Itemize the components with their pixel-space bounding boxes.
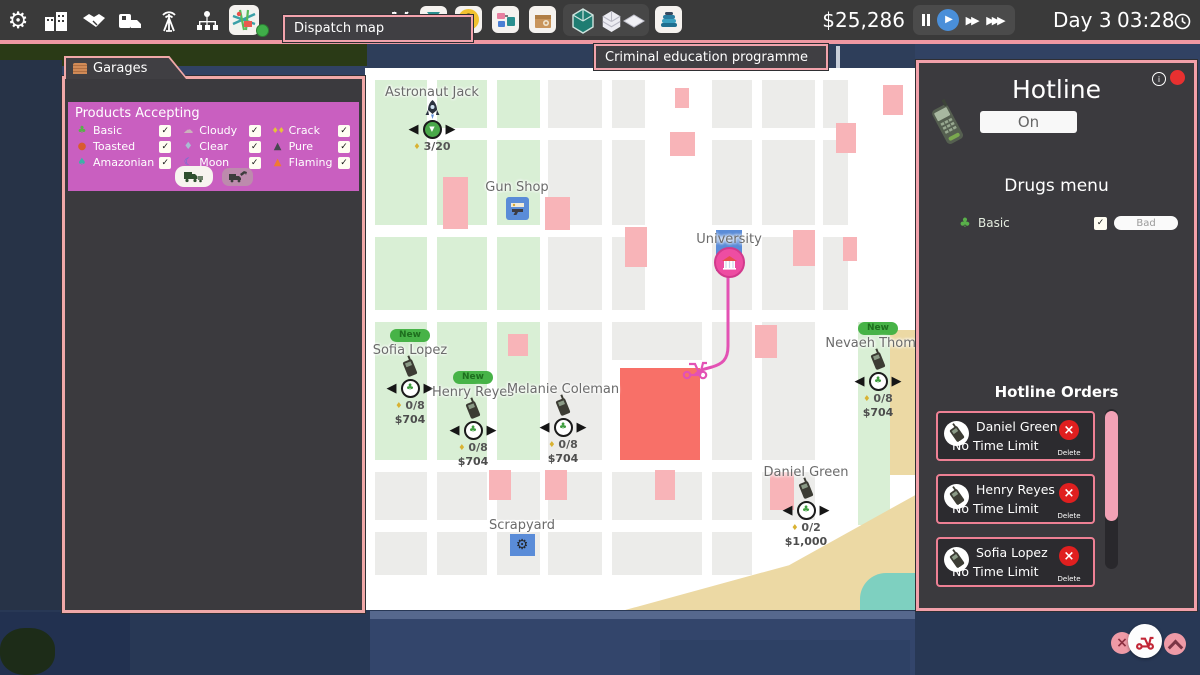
delete-order-button[interactable]: × Delete bbox=[1050, 546, 1088, 585]
delete-icon: × bbox=[1059, 420, 1079, 440]
production-icon[interactable] bbox=[116, 7, 144, 35]
delete-order-button[interactable]: × Delete bbox=[1050, 420, 1088, 459]
increase-arrow-icon[interactable]: ▶ bbox=[820, 504, 830, 517]
recall-button[interactable] bbox=[222, 168, 253, 186]
new-badge: New bbox=[390, 329, 430, 342]
product-toggle-cloudy[interactable]: ☁ Cloudy ✓ bbox=[177, 124, 266, 137]
university-icon bbox=[714, 247, 745, 278]
scroll-up-button[interactable] bbox=[1164, 633, 1186, 655]
crack-icon: ♦♦ bbox=[272, 127, 284, 135]
product-unit-icon: ♦ bbox=[791, 521, 798, 535]
garages-panel: Products Accepting ♣ Basic ✓ ☁ Cloudy ✓ … bbox=[62, 76, 365, 613]
palm-tree bbox=[0, 628, 55, 675]
top-toolbar: ⚙ ☢ bbox=[0, 0, 1200, 40]
bg-water bbox=[660, 640, 910, 675]
time-controls: ▶ ▶▶ ▶▶▶ bbox=[913, 5, 1015, 35]
gun-shop-icon bbox=[506, 197, 529, 220]
crack-checkbox[interactable]: ✓ bbox=[338, 125, 350, 137]
decrease-arrow-icon[interactable]: ◀ bbox=[855, 375, 865, 388]
delete-icon: × bbox=[1059, 546, 1079, 566]
truck-icon bbox=[183, 170, 205, 183]
truck-return-icon bbox=[228, 170, 247, 183]
decrease-arrow-icon[interactable]: ◀ bbox=[450, 424, 460, 437]
decrease-arrow-icon[interactable]: ◀ bbox=[540, 421, 550, 434]
product-unit-icon: ♦ bbox=[413, 140, 420, 154]
location-marker-university[interactable]: University bbox=[669, 232, 789, 278]
toasted-checkbox[interactable]: ✓ bbox=[159, 141, 171, 153]
rocket-icon bbox=[425, 100, 440, 119]
product-toggle-basic[interactable]: ♣ Basic ✓ bbox=[71, 124, 177, 137]
location-marker-gun-shop[interactable]: Gun Shop bbox=[457, 180, 577, 220]
time-display: 03:28 bbox=[1117, 8, 1175, 32]
dispatch-all-button[interactable] bbox=[175, 166, 213, 187]
product-toggle-clear[interactable]: ♦ Clear ✓ bbox=[177, 140, 266, 153]
decrease-arrow-icon[interactable]: ◀ bbox=[409, 123, 419, 136]
scooter-icon bbox=[681, 356, 709, 380]
dispatch-map-tooltip: Dispatch map bbox=[283, 15, 473, 42]
delete-icon: × bbox=[1059, 483, 1079, 503]
notification-dot bbox=[256, 24, 269, 37]
fast-forward-button[interactable]: ▶▶ bbox=[966, 14, 980, 27]
product-toggle-crack[interactable]: ♦♦ Crack ✓ bbox=[267, 124, 356, 137]
dealer-marker-astronaut-jack[interactable]: Astronaut Jack ◀ ▼ ▶ ♦3/20 bbox=[372, 85, 492, 154]
decrease-arrow-icon[interactable]: ◀ bbox=[783, 504, 793, 517]
product-toggle-pure[interactable]: ▲ Pure ✓ bbox=[267, 140, 356, 153]
money-display: $25,286 bbox=[815, 8, 905, 32]
product-unit-icon: ♦ bbox=[458, 441, 465, 455]
pure-icon: ▲ bbox=[272, 142, 284, 152]
garages-tab[interactable]: Garages bbox=[64, 56, 188, 79]
new-badge: New bbox=[858, 322, 898, 335]
hotline-order-card[interactable]: Sofia Lopez No Time Limit × Delete bbox=[936, 537, 1095, 587]
increase-arrow-icon[interactable]: ▶ bbox=[487, 424, 497, 437]
drugs-menu-title: Drugs menu bbox=[919, 176, 1194, 196]
pure-checkbox[interactable]: ✓ bbox=[338, 141, 350, 153]
orders-scrollbar-thumb[interactable] bbox=[1105, 411, 1118, 521]
customer-marker-nevaeh-thomas[interactable]: New Nevaeh Thomas ◀ ♣ ▶ ♦0/8 $704 bbox=[818, 322, 915, 420]
order-price: $704 bbox=[548, 452, 579, 466]
hotline-panel: i Hotline On Drugs menu ♣ Basic ✓ Bad Ho… bbox=[916, 60, 1197, 611]
antenna-icon[interactable] bbox=[155, 7, 183, 35]
garage-icon bbox=[73, 63, 87, 74]
basic-icon: ♣ bbox=[959, 217, 971, 230]
hotline-orders-title: Hotline Orders bbox=[919, 383, 1194, 401]
toasted-icon: ● bbox=[76, 142, 88, 152]
day-display: Day 3 bbox=[1053, 8, 1112, 32]
scrapyard-icon: ⚙ bbox=[510, 534, 535, 556]
customer-marker-melanie-coleman[interactable]: Melanie Coleman ◀ ♣ ▶ ♦0/8 $704 bbox=[503, 382, 623, 466]
product-leaf-icon: ♣ bbox=[554, 418, 573, 437]
drug-menu-item-basic: ♣ Basic ✓ Bad bbox=[959, 216, 1178, 230]
play-button[interactable]: ▶ bbox=[937, 9, 959, 31]
production-chain-icon[interactable] bbox=[492, 6, 519, 33]
phone-icon bbox=[555, 398, 570, 417]
network-icon[interactable] bbox=[193, 7, 221, 35]
phone-icon bbox=[798, 481, 813, 500]
criminal-programme-tooltip: Criminal education programme bbox=[594, 44, 828, 70]
orders-scrollbar[interactable] bbox=[1105, 409, 1118, 569]
warehouse-icon[interactable] bbox=[529, 6, 556, 33]
quality-selector[interactable]: Bad bbox=[1114, 216, 1178, 230]
increase-arrow-icon[interactable]: ▶ bbox=[892, 375, 902, 388]
product-cube-icon[interactable] bbox=[569, 7, 597, 35]
cloudy-checkbox[interactable]: ✓ bbox=[249, 125, 261, 137]
hotline-order-card[interactable]: Henry Reyes No Time Limit × Delete bbox=[936, 474, 1095, 524]
increase-arrow-icon[interactable]: ▶ bbox=[577, 421, 587, 434]
product-unit-icon: ♦ bbox=[395, 399, 402, 413]
order-price: $704 bbox=[863, 406, 894, 420]
unload-icon: ▼ bbox=[423, 120, 442, 139]
fastest-forward-button[interactable]: ▶▶▶ bbox=[986, 14, 1005, 27]
hotline-title: Hotline bbox=[919, 75, 1194, 104]
drug-basic-checkbox[interactable]: ✓ bbox=[1094, 217, 1107, 230]
packaging-icon[interactable] bbox=[620, 7, 648, 35]
pause-button[interactable] bbox=[922, 14, 930, 26]
scooter-icon bbox=[1135, 633, 1155, 650]
garages-tab-label: Garages bbox=[93, 61, 147, 76]
order-price: $1,000 bbox=[785, 535, 827, 549]
hotline-toggle-button[interactable]: On bbox=[980, 111, 1077, 133]
increase-arrow-icon[interactable]: ▶ bbox=[446, 123, 456, 136]
product-toggle-toasted[interactable]: ● Toasted ✓ bbox=[71, 140, 177, 153]
product-leaf-icon: ♣ bbox=[869, 372, 888, 391]
product-leaf-icon: ♣ bbox=[464, 421, 483, 440]
bg-left bbox=[0, 60, 62, 610]
phone-icon bbox=[465, 401, 480, 420]
decrease-arrow-icon[interactable]: ◀ bbox=[387, 382, 397, 395]
research-icon[interactable] bbox=[655, 6, 682, 33]
basic-icon: ♣ bbox=[76, 126, 88, 136]
customer-marker-daniel-green[interactable]: Daniel Green ◀ ♣ ▶ ♦0/2 $1,000 bbox=[746, 465, 866, 549]
phone-icon bbox=[870, 352, 885, 371]
order-price: $704 bbox=[458, 455, 489, 469]
products-accepting-title: Products Accepting bbox=[71, 105, 356, 124]
clear-checkbox[interactable]: ✓ bbox=[249, 141, 261, 153]
cloudy-icon: ☁ bbox=[182, 126, 194, 136]
clock-icon[interactable] bbox=[1168, 7, 1196, 35]
handshake-icon[interactable] bbox=[80, 7, 108, 35]
dispatch-map-icon[interactable] bbox=[229, 5, 259, 35]
settings-icon[interactable]: ⚙ bbox=[4, 7, 32, 35]
delete-order-button[interactable]: × Delete bbox=[1050, 483, 1088, 522]
new-badge: New bbox=[453, 371, 493, 384]
bg-pool-edge bbox=[370, 611, 915, 619]
game-screen: ⚙ ☢ bbox=[0, 0, 1200, 675]
chevron-up-icon bbox=[1167, 639, 1183, 655]
bg-lamp bbox=[836, 46, 840, 68]
dispatch-map[interactable]: Astronaut Jack ◀ ▼ ▶ ♦3/20 Gun Shop Univ… bbox=[365, 68, 915, 610]
hotline-order-card[interactable]: Daniel Green No Time Limit × Delete bbox=[936, 411, 1095, 461]
clear-icon: ♦ bbox=[182, 142, 194, 152]
location-marker-scrapyard[interactable]: Scrapyard ⚙ bbox=[462, 518, 582, 556]
city-icon[interactable] bbox=[42, 7, 70, 35]
product-unit-icon: ♦ bbox=[548, 438, 555, 452]
product-leaf-icon: ♣ bbox=[797, 501, 816, 520]
scooter-alert-button[interactable] bbox=[1128, 624, 1162, 658]
basic-checkbox[interactable]: ✓ bbox=[159, 125, 171, 137]
product-unit-icon: ♦ bbox=[863, 392, 870, 406]
